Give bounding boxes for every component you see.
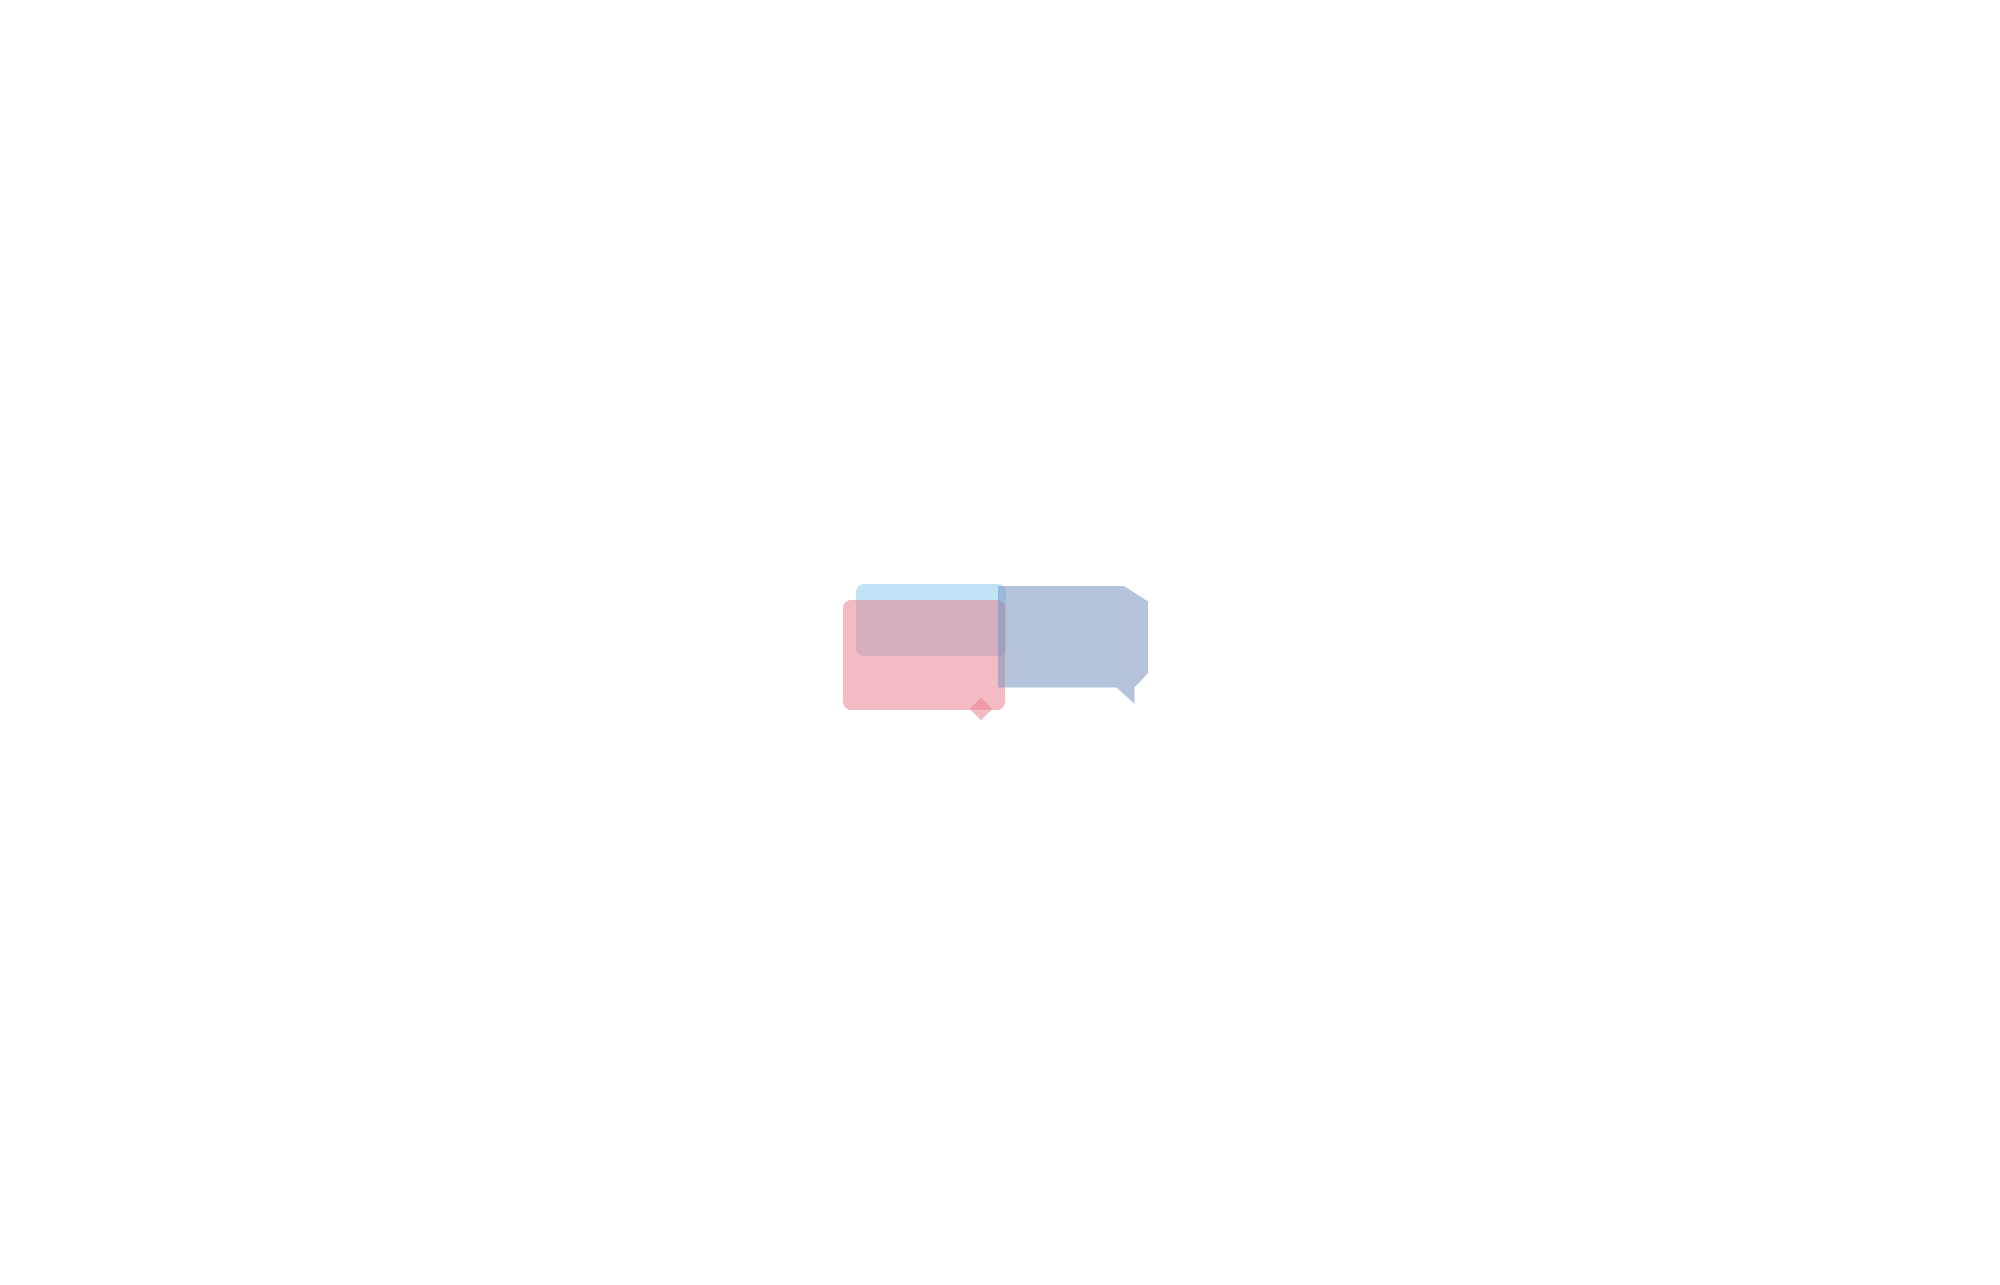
floor-plan-canvas xyxy=(0,0,2000,1285)
floor-plan-svg xyxy=(0,0,2000,1285)
